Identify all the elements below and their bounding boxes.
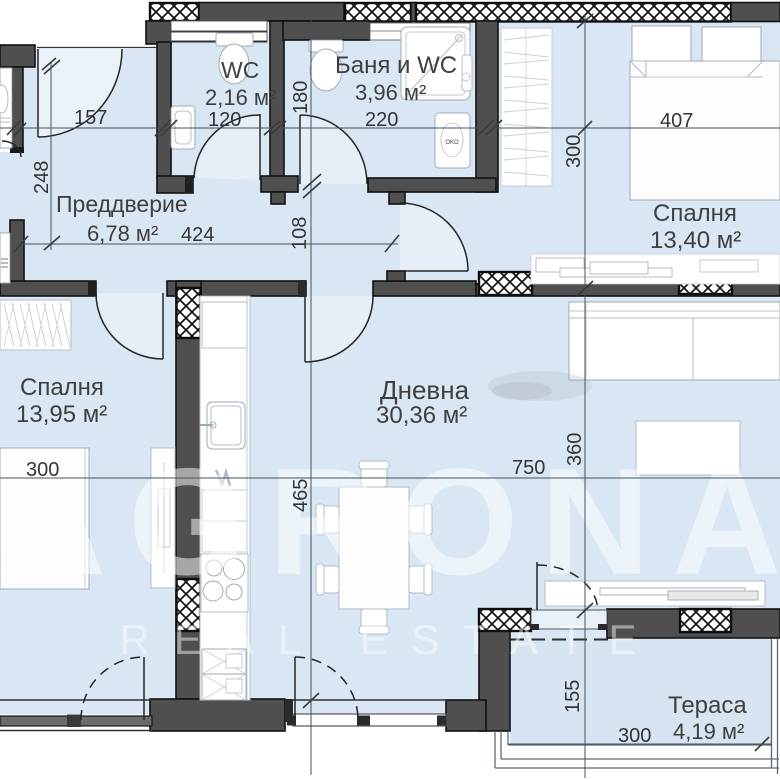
svg-text:300: 300 — [26, 459, 59, 481]
svg-text:120: 120 — [208, 109, 241, 131]
svg-text:Дневна: Дневна — [380, 375, 470, 405]
svg-text:OKO: OKO — [445, 140, 459, 146]
svg-text:424: 424 — [181, 224, 214, 246]
svg-text:Спалня: Спалня — [20, 374, 104, 401]
svg-text:360: 360 — [564, 433, 586, 466]
svg-text:13,40 м²: 13,40 м² — [650, 227, 741, 254]
svg-text:220: 220 — [365, 109, 398, 131]
svg-text:Баня и WC: Баня и WC — [335, 52, 457, 79]
svg-text:Преддверие: Преддверие — [56, 191, 188, 217]
svg-text:155: 155 — [562, 680, 584, 713]
svg-text:157: 157 — [74, 107, 107, 129]
svg-text:13,95 м²: 13,95 м² — [16, 401, 107, 428]
svg-text:30,36 м²: 30,36 м² — [376, 402, 467, 429]
svg-text:6,78 м²: 6,78 м² — [87, 221, 158, 246]
svg-text:300: 300 — [618, 725, 651, 747]
svg-text:300: 300 — [563, 135, 585, 168]
svg-text:3,96 м²: 3,96 м² — [355, 80, 426, 105]
svg-text:WC: WC — [221, 57, 259, 83]
svg-text:2,16 м²: 2,16 м² — [205, 85, 276, 110]
svg-text:465: 465 — [290, 479, 312, 512]
svg-text:4,19 м²: 4,19 м² — [673, 719, 744, 744]
svg-text:248: 248 — [31, 161, 53, 194]
svg-text:180: 180 — [290, 81, 312, 114]
svg-text:REAL ESTATE: REAL ESTATE — [120, 616, 661, 663]
svg-text:Спалня: Спалня — [653, 200, 737, 227]
svg-text:108: 108 — [289, 217, 311, 250]
svg-text:407: 407 — [660, 110, 693, 132]
svg-text:750: 750 — [512, 457, 545, 479]
svg-text:Тераса: Тераса — [668, 692, 747, 719]
svg-text:AGRONA: AGRONA — [0, 437, 780, 607]
